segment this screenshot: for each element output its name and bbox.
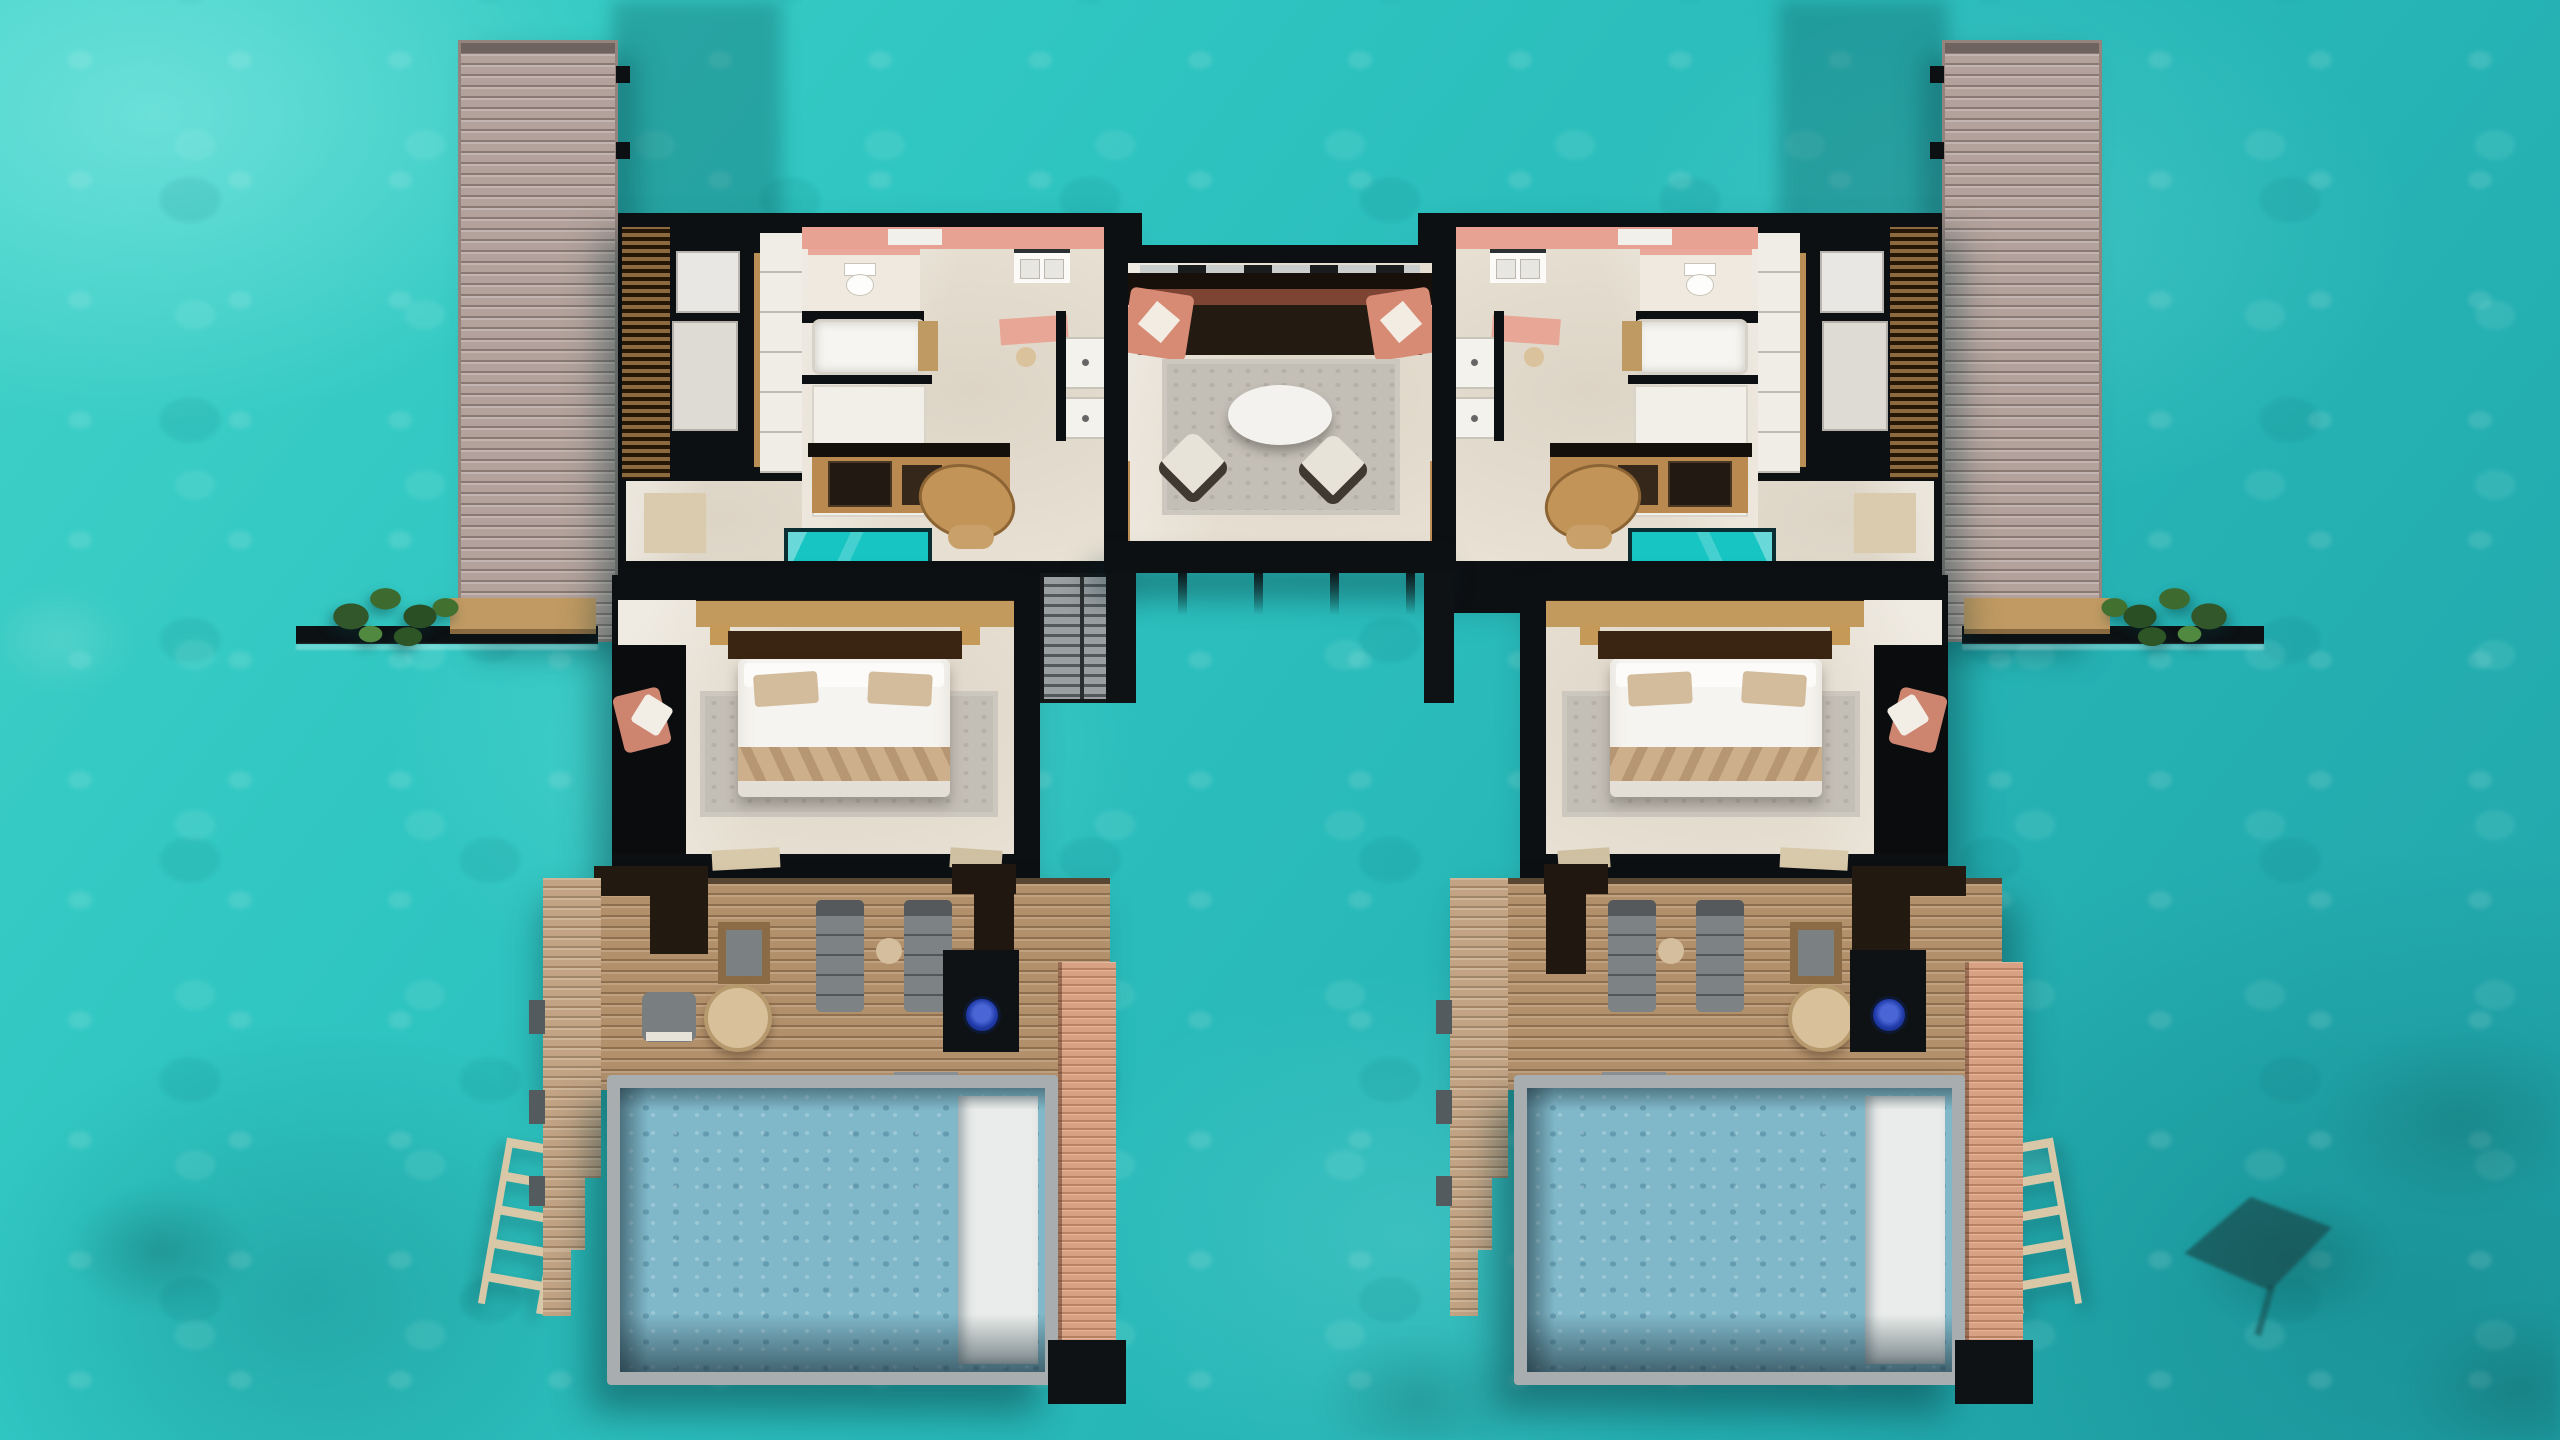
lounge-left-wall <box>1104 245 1128 557</box>
step-landing <box>1436 1000 1452 1034</box>
step-landing <box>529 1090 545 1124</box>
partition-wall <box>1628 375 1758 384</box>
shower-drain <box>1471 415 1478 422</box>
table-stool <box>1566 525 1612 549</box>
towel-shelf <box>1618 229 1672 245</box>
central-lounge-pavilion <box>1104 213 1456 713</box>
bedroom-wing <box>1520 575 1948 881</box>
block-top-wall <box>1428 213 1942 227</box>
pool-assembly-right <box>1450 878 2050 1438</box>
door-mat <box>1780 847 1849 871</box>
tub-bench <box>1622 321 1642 371</box>
pool-depth-shade <box>620 1088 1045 1110</box>
sink-basin <box>1520 259 1540 279</box>
wardrobe <box>1820 251 1884 313</box>
accent-pillow <box>1627 671 1693 706</box>
side-deck-end-cap <box>1955 1340 2033 1404</box>
louver-roof-slats <box>1890 225 1938 479</box>
dressing-mat <box>1854 493 1916 553</box>
step-landing <box>529 1000 545 1034</box>
bathroom-pink-wall <box>1452 225 1758 249</box>
piling-post <box>1406 573 1415 615</box>
villa-main-block <box>1428 213 1942 577</box>
piling-post <box>1254 573 1263 615</box>
bedside-knob <box>1830 625 1850 645</box>
jetty-shadow <box>1778 0 1948 225</box>
access-jetty <box>1942 40 2102 642</box>
planter-foliage <box>2092 568 2242 656</box>
wing-top-wall <box>1520 575 1948 600</box>
sink-basin <box>1496 259 1516 279</box>
private-pool <box>1514 1075 1965 1385</box>
walkway-bench <box>1964 598 2110 634</box>
stepped-sundeck <box>543 1178 585 1250</box>
pool-assembly-left <box>543 878 1143 1438</box>
entry-pillar <box>1106 573 1136 703</box>
step-landing <box>1436 1176 1452 1206</box>
blue-ring-fixture <box>1870 996 1908 1034</box>
piling-post <box>1330 573 1339 615</box>
vanity-stool <box>1524 347 1544 367</box>
lounge-bottom-wall <box>1104 541 1456 573</box>
closet-column <box>1758 233 1800 473</box>
blue-ring-fixture <box>963 996 1001 1034</box>
stepped-sundeck <box>543 878 601 1178</box>
pool-depth-shade <box>1527 1314 1952 1372</box>
step-landing <box>1436 1090 1452 1124</box>
door-trim <box>1800 253 1806 467</box>
headboard-console <box>1542 597 1864 627</box>
mooring-cleat <box>1930 142 1944 159</box>
bathtub <box>1634 319 1748 375</box>
catamaran-side-deck <box>1058 962 1116 1396</box>
pool-depth-shade <box>620 1314 1045 1372</box>
accent-pillow <box>1741 671 1807 707</box>
stepped-sundeck <box>1450 1178 1492 1250</box>
jetty-end-cap <box>1945 43 2099 53</box>
catamaran-side-deck <box>1965 962 2023 1396</box>
bed-runner <box>1610 747 1822 781</box>
private-pool <box>607 1075 1058 1385</box>
mooring-cleat <box>1930 66 1944 83</box>
sliding-door-track <box>1140 265 1420 273</box>
entry-pillar <box>1424 573 1454 703</box>
pool-water <box>1527 1088 1952 1372</box>
pool-water <box>620 1088 1045 1372</box>
kitchen-counter-top <box>1550 443 1752 457</box>
step-landing <box>529 1176 545 1206</box>
shower-drain <box>1471 359 1478 366</box>
partition-wall <box>1494 311 1504 441</box>
pool-depth-shade <box>1527 1088 1952 1110</box>
side-deck-end-cap <box>1048 1340 1126 1404</box>
lounge-right-wall <box>1432 245 1456 557</box>
oval-coffee-table <box>1228 385 1332 445</box>
piling-post <box>1178 573 1187 615</box>
canopy-center-rail <box>1080 577 1084 699</box>
lagoon-scene <box>0 0 2560 1440</box>
toilet-bowl <box>1686 274 1714 296</box>
stepped-sundeck <box>543 1250 571 1316</box>
stepped-sundeck <box>1450 1250 1478 1316</box>
daybed-nook <box>1874 645 1948 857</box>
minibar-appliance <box>1668 461 1732 507</box>
bedside-knob <box>1580 625 1600 645</box>
stepped-sundeck <box>1450 878 1508 1178</box>
wing-right-wall <box>1520 575 1546 881</box>
headboard <box>1598 631 1832 659</box>
wardrobe <box>1822 321 1888 431</box>
